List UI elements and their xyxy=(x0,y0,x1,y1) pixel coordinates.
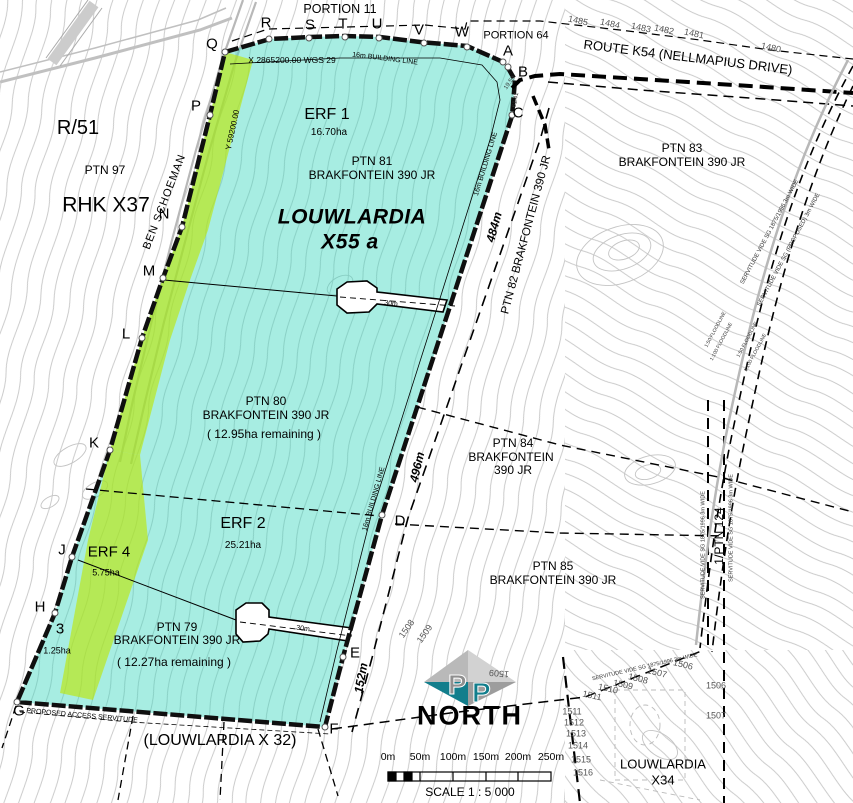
erf2-area-label: 25.21ha xyxy=(225,541,261,551)
contour-col-1513: 1513 xyxy=(566,730,586,739)
corner-d: D xyxy=(395,514,406,529)
erf1-area-label: 16.70ha xyxy=(311,128,347,138)
portion-11-label: PORTION 11 xyxy=(303,3,376,16)
ptn79-label: PTN 79 xyxy=(157,621,198,633)
scale-caption: SCALE 1 : 5 000 xyxy=(425,786,514,798)
ptn79-remaining-label: ( 12.27ha remaining ) xyxy=(117,656,231,668)
contour-col-1512: 1512 xyxy=(564,719,584,728)
corner-j: J xyxy=(58,543,66,558)
contour-flipped-1509: 1509 xyxy=(489,668,510,679)
corner-u: U xyxy=(372,17,383,32)
erf1-label: ERF 1 xyxy=(304,107,349,123)
corner-v: V xyxy=(414,23,424,38)
corner-h: H xyxy=(35,600,46,615)
scale-tick-150: 150m xyxy=(473,752,499,763)
corner-f: F xyxy=(329,722,338,737)
corner-c: C xyxy=(513,106,524,121)
ptn83-label: PTN 83 xyxy=(662,142,703,154)
ptn124-label: 1/PTN 124 xyxy=(713,507,725,564)
erf3-area-label: 1.25ha xyxy=(43,647,71,656)
corner-l: L xyxy=(122,327,130,342)
ptn84-farm-label-2: 390 JR xyxy=(494,464,532,476)
corner-3: 3 xyxy=(56,622,64,637)
servitude-vert-label-2: SERVITUDE VIDE SG 1875/1996 3m WIDE xyxy=(729,474,735,582)
louwlardia-x34-label-1: LOUWLARDIA xyxy=(620,758,706,771)
corner-s: S xyxy=(305,18,315,33)
ptn85-label: PTN 85 xyxy=(533,560,574,572)
ptn83-farm-label: BRAKFONTEIN 390 JR xyxy=(619,156,746,168)
ptn80-remaining-label: ( 12.95ha remaining ) xyxy=(207,428,321,440)
rhk-x37-label: RHK X37 xyxy=(62,195,150,216)
scale-tick-50: 50m xyxy=(410,752,430,763)
servitude-vert-label-1: SERVITUDE VIDE SG 1875/1996 3m WIDE xyxy=(701,491,707,599)
township-title-2: X55 a xyxy=(321,232,378,253)
contour-col-1516: 1516 xyxy=(573,769,593,778)
flag1-width-label: 30m xyxy=(384,300,398,308)
contour-right-1507: 1507 xyxy=(706,712,726,721)
coord-x-label: X 2865200.00 WGS 29 xyxy=(248,56,335,65)
corner-w: W xyxy=(455,25,469,40)
ptn80-farm-label: BRAKFONTEIN 390 JR xyxy=(203,409,330,421)
erf2-label: ERF 2 xyxy=(220,516,265,532)
corner-q: Q xyxy=(206,37,218,52)
ptn84-farm-label: BRAKFONTEIN xyxy=(468,451,553,463)
contour-col-1514: 1514 xyxy=(568,742,588,751)
ptn81-farm-label: BRAKFONTEIN 390 JR xyxy=(309,169,436,181)
scale-tick-250: 250m xyxy=(538,752,564,763)
ptn81-label: PTN 81 xyxy=(352,155,393,167)
corner-t: T xyxy=(338,17,347,32)
contour-right-1506: 1506 xyxy=(706,682,726,691)
contour-col-1511: 1511 xyxy=(562,708,581,717)
corner-g: G xyxy=(13,704,25,719)
portion-64-label: PORTION 64 xyxy=(483,31,548,42)
scale-tick-200: 200m xyxy=(505,752,531,763)
corner-e: E xyxy=(350,646,360,661)
corner-k: K xyxy=(89,436,99,451)
ptn84-label: PTN 84 xyxy=(493,437,534,449)
r51-label: R/51 xyxy=(57,118,99,138)
contour-col-1515: 1515 xyxy=(571,756,591,765)
logo-p-gray: P xyxy=(448,669,467,700)
ptn80-label: PTN 80 xyxy=(246,395,287,407)
ptn79-farm-label: BRAKFONTEIN 390 JR xyxy=(114,634,241,646)
scale-tick-100: 100m xyxy=(440,752,466,763)
flag2-width-label: 30m xyxy=(296,625,310,634)
louwlardia-x32-label: (LOUWLARDIA X 32) xyxy=(144,733,297,749)
corner-b: B xyxy=(518,65,528,80)
ptn85-farm-label: BRAKFONTEIN 390 JR xyxy=(490,574,617,586)
scale-tick-0: 0m xyxy=(381,752,396,763)
corner-r: R xyxy=(261,16,272,31)
louwlardia-x34-label-2: X34 xyxy=(651,774,674,787)
erf4-area-label: 5.75ha xyxy=(92,569,120,578)
cadastral-map: P P Q R S T U V W A B C D E F G H J K L … xyxy=(0,0,853,803)
corner-a: A xyxy=(503,44,513,59)
erf4-label: ERF 4 xyxy=(88,545,131,560)
north-label: NORTH xyxy=(417,703,523,730)
ptn97-label: PTN 97 xyxy=(85,164,126,176)
corner-p: P xyxy=(191,99,201,114)
township-title-1: LOUWLARDIA xyxy=(278,207,426,228)
corner-m: M xyxy=(143,264,156,279)
